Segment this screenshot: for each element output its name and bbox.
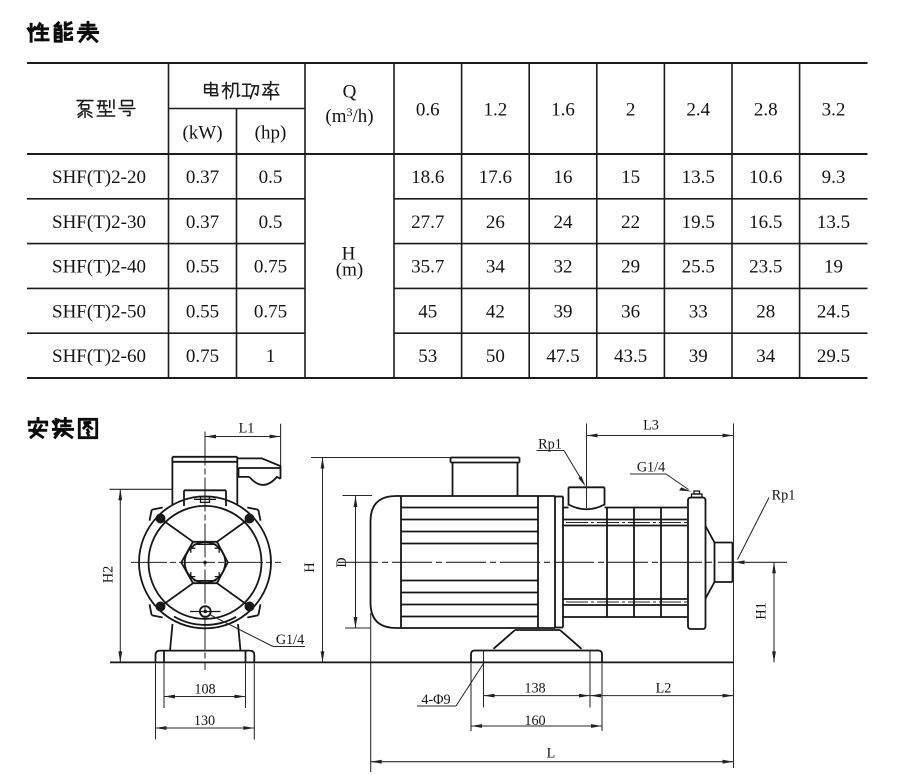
svg-text:3.2: 3.2 xyxy=(822,100,846,121)
svg-text:33: 33 xyxy=(689,301,708,322)
svg-text:0.75: 0.75 xyxy=(186,346,219,367)
svg-text:160: 160 xyxy=(524,713,545,729)
svg-text:2.8: 2.8 xyxy=(754,100,778,121)
svg-text:15: 15 xyxy=(621,167,640,188)
svg-text:39: 39 xyxy=(689,346,708,367)
svg-text:SHF(T)2-50: SHF(T)2-50 xyxy=(52,301,146,322)
svg-text:0.75: 0.75 xyxy=(254,257,287,278)
svg-text:SHF(T)2-20: SHF(T)2-20 xyxy=(52,167,146,188)
svg-text:27.7: 27.7 xyxy=(411,212,444,233)
svg-text:10.6: 10.6 xyxy=(749,167,782,188)
svg-text:34: 34 xyxy=(486,257,506,278)
svg-text:13.5: 13.5 xyxy=(682,167,715,188)
svg-text:24: 24 xyxy=(554,212,574,233)
svg-text:16: 16 xyxy=(554,167,573,188)
svg-text:19.5: 19.5 xyxy=(682,212,715,233)
svg-text:G1/4: G1/4 xyxy=(637,460,665,476)
svg-text:0.37: 0.37 xyxy=(186,167,219,188)
svg-text:G1/4: G1/4 xyxy=(276,632,304,648)
svg-text:32: 32 xyxy=(554,257,573,278)
svg-text:26: 26 xyxy=(486,212,505,233)
svg-text:138: 138 xyxy=(524,680,545,696)
svg-text:1.6: 1.6 xyxy=(551,100,575,121)
svg-text:H: H xyxy=(302,562,318,572)
svg-text:(m3/h): (m3/h) xyxy=(325,105,373,127)
svg-text:13.5: 13.5 xyxy=(817,212,850,233)
svg-text:35.7: 35.7 xyxy=(411,257,444,278)
svg-text:17.6: 17.6 xyxy=(479,167,512,188)
svg-text:0.37: 0.37 xyxy=(186,212,219,233)
svg-text:0.5: 0.5 xyxy=(259,212,283,233)
svg-text:36: 36 xyxy=(621,301,640,322)
svg-text:L1: L1 xyxy=(239,421,255,437)
svg-text:(kW): (kW) xyxy=(182,123,222,144)
svg-text:25.5: 25.5 xyxy=(682,257,715,278)
svg-text:39: 39 xyxy=(554,301,573,322)
svg-text:0.55: 0.55 xyxy=(186,301,219,322)
svg-text:L2: L2 xyxy=(656,680,672,696)
svg-text:23.5: 23.5 xyxy=(749,257,782,278)
svg-text:43.5: 43.5 xyxy=(614,346,647,367)
svg-text:0.5: 0.5 xyxy=(259,167,283,188)
svg-text:0.75: 0.75 xyxy=(254,301,287,322)
svg-text:SHF(T)2-40: SHF(T)2-40 xyxy=(52,257,146,278)
svg-text:24.5: 24.5 xyxy=(817,301,850,322)
svg-text:(hp): (hp) xyxy=(255,123,287,144)
svg-text:Q: Q xyxy=(343,82,357,103)
svg-text:34: 34 xyxy=(756,346,776,367)
svg-text:SHF(T)2-60: SHF(T)2-60 xyxy=(52,346,146,367)
svg-text:9.3: 9.3 xyxy=(822,167,846,188)
svg-text:45: 45 xyxy=(418,301,437,322)
svg-text:1.2: 1.2 xyxy=(484,100,508,121)
svg-text:22: 22 xyxy=(621,212,640,233)
svg-text:D: D xyxy=(334,557,350,567)
svg-text:108: 108 xyxy=(194,681,215,697)
svg-text:2: 2 xyxy=(626,100,636,121)
svg-text:1: 1 xyxy=(266,346,276,367)
svg-text:H2: H2 xyxy=(101,566,117,583)
svg-text:130: 130 xyxy=(194,713,215,729)
svg-text:28: 28 xyxy=(756,301,775,322)
svg-text:0.6: 0.6 xyxy=(416,100,440,121)
svg-text:42: 42 xyxy=(486,301,505,322)
svg-text:SHF(T)2-30: SHF(T)2-30 xyxy=(52,212,146,233)
svg-text:53: 53 xyxy=(418,346,437,367)
svg-text:47.5: 47.5 xyxy=(546,346,579,367)
svg-text:L3: L3 xyxy=(643,418,659,434)
svg-text:Rp1: Rp1 xyxy=(772,488,796,504)
svg-text:L: L xyxy=(547,746,556,762)
svg-text:(m): (m) xyxy=(336,260,363,281)
svg-text:50: 50 xyxy=(486,346,505,367)
svg-text:19: 19 xyxy=(824,257,843,278)
svg-text:0.55: 0.55 xyxy=(186,257,219,278)
svg-text:2.4: 2.4 xyxy=(686,100,710,121)
svg-text:16.5: 16.5 xyxy=(749,212,782,233)
svg-text:18.6: 18.6 xyxy=(411,167,444,188)
svg-text:H1: H1 xyxy=(754,602,770,619)
svg-text:29: 29 xyxy=(621,257,640,278)
svg-text:29.5: 29.5 xyxy=(817,346,850,367)
